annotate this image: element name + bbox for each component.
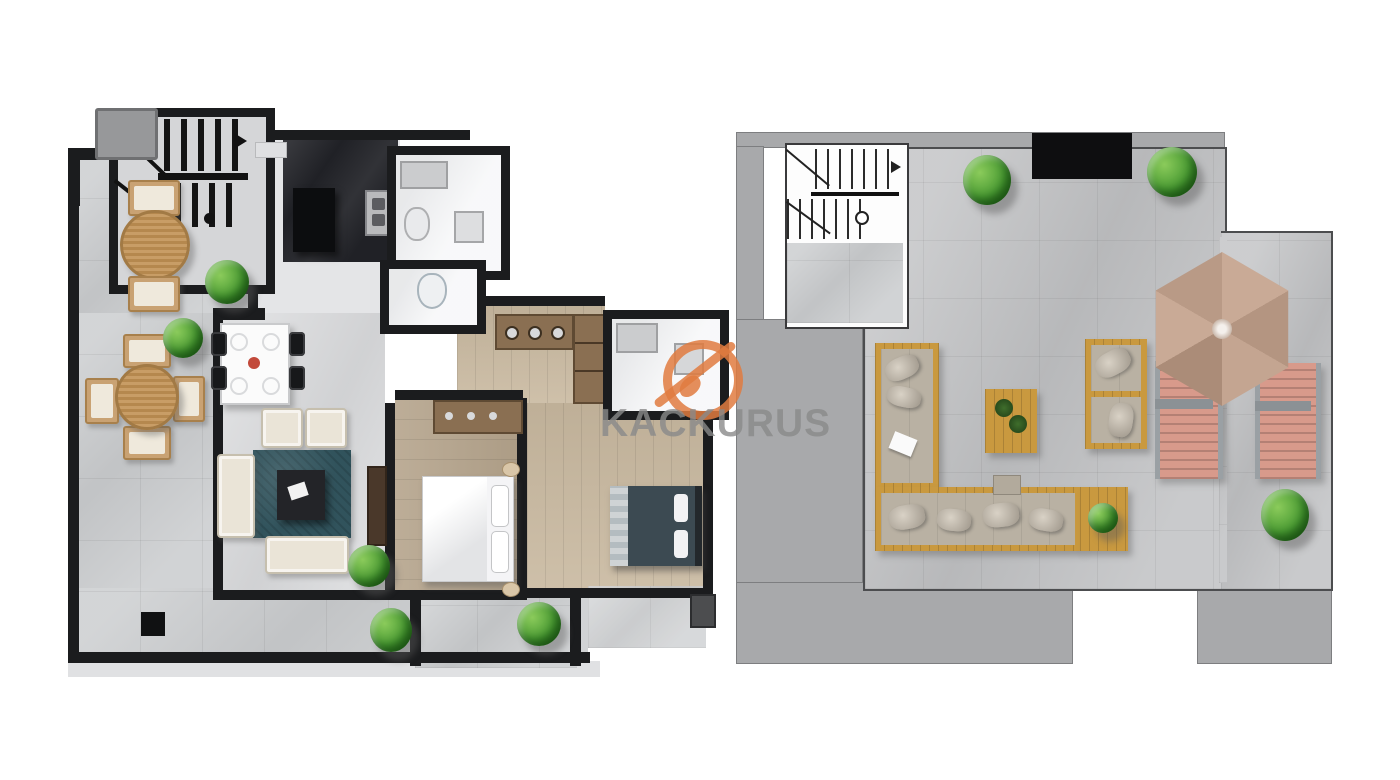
bed-single [610, 486, 702, 566]
stair-rail [158, 173, 248, 180]
terrace-chair [85, 378, 119, 424]
bed-headboard [695, 486, 702, 566]
outdoor-loveseat [1085, 339, 1147, 449]
dining-chair [211, 366, 227, 390]
closet-shelf-line [575, 370, 603, 372]
dining-table [220, 323, 290, 405]
outdoor-sofa-bottom [875, 487, 1081, 551]
bed-pillow [491, 485, 509, 527]
plant-icon [517, 602, 561, 646]
bedroom1-wardrobe [433, 400, 523, 434]
sofa-side-tray [993, 475, 1021, 495]
plant-icon [1088, 503, 1118, 533]
hanger-icon [489, 412, 497, 420]
brand-name: KACKURUS [600, 402, 810, 446]
skylight-black [1032, 133, 1132, 179]
wall-top-left-v [68, 148, 80, 206]
bed-double [422, 476, 514, 582]
plate [230, 377, 248, 395]
lounger-headrest [1255, 401, 1311, 411]
bed-duvet-fold [610, 486, 628, 566]
bed-pillow [491, 531, 509, 573]
closet-rod [495, 314, 574, 350]
plate [230, 333, 248, 351]
structural-column [141, 612, 165, 636]
ac-unit-top-left [95, 108, 158, 160]
bathroom1-toilet [404, 207, 430, 241]
stair-newel-dot [204, 213, 215, 224]
bathroom1-shower [454, 211, 484, 243]
roof-terrace-plan [737, 133, 1349, 668]
sink-basin-2 [372, 214, 385, 226]
coffee-table-book [287, 482, 308, 501]
sink-basin-1 [372, 198, 385, 210]
potted-plant-icon [1009, 415, 1027, 433]
stair-direction-arrow [234, 133, 247, 149]
roof-stair-arrow [891, 161, 901, 173]
sofa-end-table [1080, 487, 1128, 551]
roof-staircase-room [785, 143, 909, 329]
plant-icon [205, 260, 249, 304]
kitchen-counter-white [255, 142, 287, 158]
dining-chair [211, 332, 227, 356]
watermark: KACKURUS [600, 330, 810, 455]
roof-slab-bottom-right [1198, 583, 1331, 663]
closet-shelf-line [575, 342, 603, 344]
sofa-bottom [265, 536, 349, 574]
ac-unit-right [690, 594, 716, 628]
wall-balcony1-right [570, 594, 581, 666]
wall-outer-bottom [68, 652, 590, 663]
terrace-chair [128, 276, 180, 312]
armchair [305, 408, 347, 448]
dining-centerpiece [248, 357, 260, 369]
round-table [115, 364, 179, 430]
hanger-icon [551, 326, 565, 340]
dining-chair [289, 366, 305, 390]
terrace-coffee-table [985, 389, 1037, 453]
plant-icon [1261, 489, 1309, 541]
plant-icon [963, 155, 1011, 205]
bed-pillow [674, 530, 688, 558]
wall-outer-left [68, 203, 79, 663]
plant-icon [348, 545, 390, 587]
hanger-icon [528, 326, 542, 340]
plant-icon [1147, 147, 1197, 197]
bathroom1-sink [400, 161, 448, 189]
bed-duvet [423, 477, 487, 581]
wc-toilet [417, 273, 447, 309]
wall-living-bottom [213, 590, 395, 600]
floor-plan-canvas: KACKURUS [0, 0, 1400, 780]
potted-plant-icon [995, 399, 1013, 417]
roof-stair-newel [855, 211, 869, 225]
wall-kitchen-top [248, 130, 470, 140]
kitchen-island [293, 188, 335, 252]
roof-stair-landing [787, 243, 903, 323]
wall-bedroom1-top [395, 390, 523, 400]
hanger-icon [445, 412, 453, 420]
umbrella-pole [1212, 319, 1232, 339]
armchair [261, 408, 303, 448]
lounger-headrest [1155, 399, 1213, 409]
sofa-left [217, 454, 255, 538]
roof-slab-bottom [737, 583, 1072, 663]
roof-slab-left [737, 147, 763, 323]
plant-icon [163, 318, 203, 358]
outdoor-sofa-left [875, 343, 939, 489]
plant-icon [370, 608, 412, 652]
plate [262, 377, 280, 395]
wall-bedroom2-bottom [527, 588, 703, 598]
hanger-icon [505, 326, 519, 340]
hanger-icon [467, 412, 475, 420]
coffee-table [277, 470, 325, 520]
nightstand-stool [502, 582, 520, 597]
round-table [120, 210, 190, 280]
tv-unit [367, 466, 387, 546]
dining-chair [289, 332, 305, 356]
terrace-chair [123, 426, 171, 460]
bed-pillow [674, 494, 688, 522]
nightstand-stool [502, 462, 520, 477]
wc-room [380, 260, 486, 334]
roof-stair-rail [811, 192, 899, 196]
plate [262, 333, 280, 351]
